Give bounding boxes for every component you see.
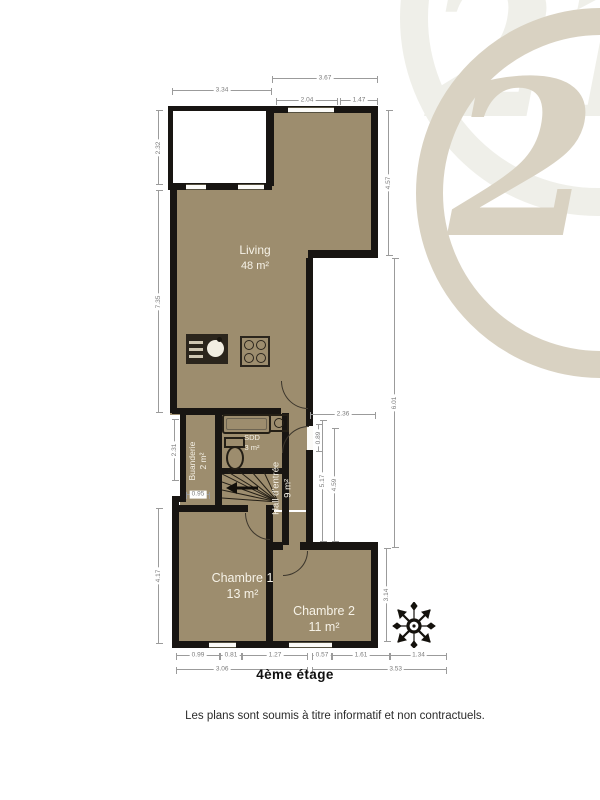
dimension-line: 0.89 [318, 424, 319, 452]
dimension-label: 0.57 [314, 652, 331, 660]
disclaimer-text: Les plans sont soumis à titre informatif… [40, 710, 600, 722]
wall [180, 413, 186, 501]
dimension-label: 0.81 [223, 652, 240, 660]
dimension-label: 6.01 [391, 395, 399, 412]
room-area: 11 m² [270, 619, 378, 635]
wall [273, 542, 283, 550]
dimension-line: 3.14 [386, 548, 387, 642]
window [288, 107, 334, 113]
wall [172, 505, 248, 512]
dimension-label: 1.47 [351, 97, 368, 105]
dimension-line: 1.47 [340, 100, 378, 101]
stove-icon [240, 336, 270, 367]
dimension-line: 4.57 [388, 110, 389, 256]
wall [168, 106, 272, 111]
wall [371, 106, 378, 258]
dimension-label: 3.14 [383, 587, 391, 604]
room-name: SDD [230, 433, 274, 443]
room-area: 9 m² [283, 440, 295, 536]
dimension-line: 1.27 [242, 655, 308, 656]
century21-watermark-number-front: 21 [448, 52, 600, 267]
dimension-label: 1.27 [267, 652, 284, 660]
room-label-chambre1: Chambre 1 13 m² [185, 570, 300, 603]
dimension-line: 4.59 [334, 428, 335, 542]
wall [300, 542, 378, 550]
dimension-line: 5.17 [322, 420, 323, 542]
dimension-label: 0.99 [190, 652, 207, 660]
room-area: 48 m² [200, 259, 310, 273]
floor-level-label: 4ème étage [180, 667, 410, 682]
wall [168, 106, 173, 188]
room-area: 3 m² [230, 443, 274, 453]
dimension-label: 0.95 [190, 491, 207, 499]
dimension-label: 3.67 [317, 75, 334, 83]
room-label-chambre2: Chambre 2 11 m² [270, 603, 378, 636]
wall [172, 500, 179, 648]
shower-tray-icon [222, 414, 271, 434]
dimension-line: 1.34 [390, 655, 447, 656]
dimension-line: 0.57 [312, 655, 332, 656]
dimension-line: 1.61 [332, 655, 390, 656]
dimension-line: 2.31 [174, 419, 175, 481]
dimension-line: 2.04 [276, 100, 338, 101]
window [238, 184, 264, 190]
dimension-label: 2.31 [171, 442, 179, 459]
room-name: Chambre 1 [185, 570, 300, 586]
dimension-line: 0.95 [186, 494, 210, 495]
dimension-line: 6.01 [394, 258, 395, 548]
dimension-label: 2.32 [155, 139, 163, 156]
wall [306, 450, 313, 545]
dimension-label: 4.59 [331, 477, 339, 494]
dimension-label: 2.04 [299, 97, 316, 105]
dimension-line: 3.34 [172, 90, 272, 91]
dimension-line: 4.17 [158, 508, 159, 644]
room-name: Hall d'entrée [271, 440, 283, 536]
wall [266, 106, 274, 186]
dimension-label: 2.36 [335, 411, 352, 419]
washbasin-icon [269, 414, 289, 432]
dimension-label: 5.17 [319, 473, 327, 490]
floorplan-page: 21 21 [0, 0, 600, 800]
compass-rose-icon [392, 602, 436, 648]
wall [172, 641, 378, 648]
room-label-living: Living 48 m² [200, 243, 310, 273]
room-label-hall: Hall d'entrée 9 m² [271, 440, 296, 536]
window [186, 184, 206, 190]
dimension-line: 3.67 [272, 78, 378, 79]
room-name: Chambre 2 [270, 603, 378, 619]
wall [215, 413, 222, 505]
dimension-line: 7.35 [158, 190, 159, 413]
dimension-line: 2.36 [310, 414, 376, 415]
dimension-label: 3.34 [214, 87, 231, 95]
dimension-label: 1.34 [410, 652, 427, 660]
dimension-line: 0.99 [176, 655, 220, 656]
window [289, 642, 332, 648]
wall [308, 250, 378, 258]
dimension-line: 0.81 [220, 655, 242, 656]
dimension-line: 2.32 [158, 110, 159, 185]
kitchen-sink-icon [186, 334, 228, 364]
wall [170, 183, 177, 413]
room-label-sdd: SDD 3 m² [230, 433, 274, 453]
dimension-label: 1.61 [353, 652, 370, 660]
window [209, 642, 236, 648]
room-area: 13 m² [185, 586, 300, 602]
dimension-label: 4.57 [385, 175, 393, 192]
dimension-label: 7.35 [155, 293, 163, 310]
dimension-label: 4.17 [155, 568, 163, 585]
room-name: Living [200, 243, 310, 259]
